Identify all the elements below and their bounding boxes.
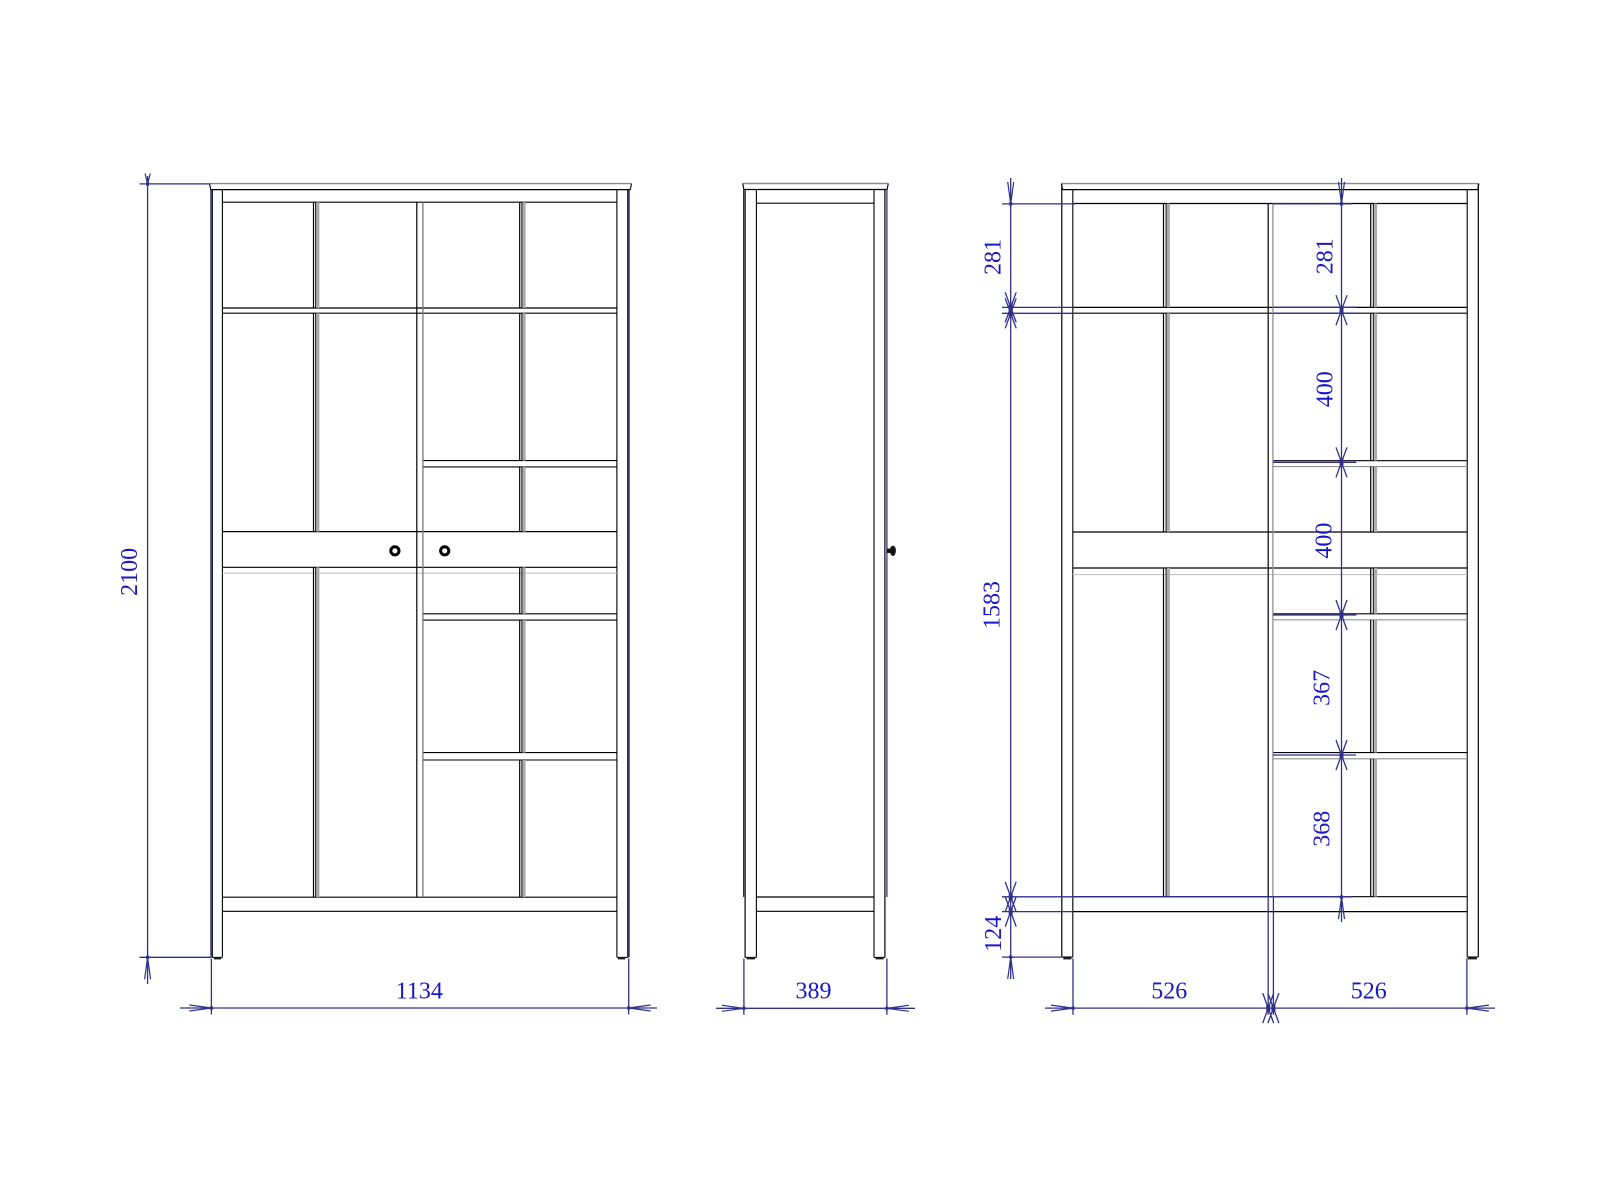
svg-text:1134: 1134 — [396, 978, 443, 1004]
svg-text:1583: 1583 — [980, 581, 1006, 629]
svg-text:389: 389 — [796, 978, 832, 1004]
svg-text:400: 400 — [1312, 523, 1338, 559]
svg-text:2100: 2100 — [117, 548, 143, 596]
svg-text:367: 367 — [1309, 670, 1335, 706]
svg-text:526: 526 — [1151, 978, 1187, 1004]
svg-text:368: 368 — [1309, 811, 1335, 847]
svg-text:526: 526 — [1351, 978, 1387, 1004]
svg-text:281: 281 — [981, 239, 1007, 275]
svg-text:281: 281 — [1313, 238, 1339, 274]
svg-text:400: 400 — [1313, 371, 1339, 407]
svg-text:124: 124 — [981, 916, 1007, 952]
